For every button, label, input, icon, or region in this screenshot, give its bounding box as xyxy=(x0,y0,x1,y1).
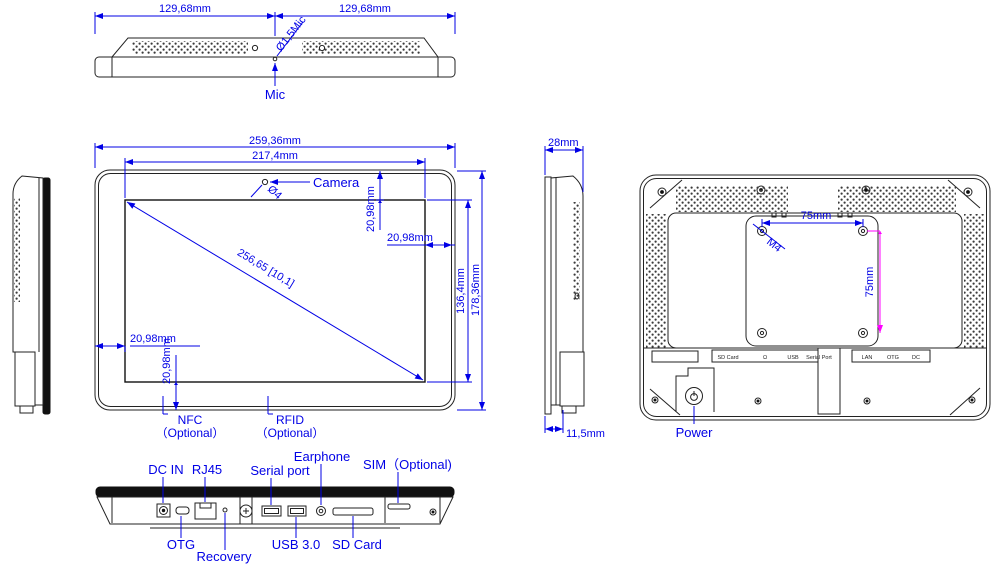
sim-label: SIM（Optional) xyxy=(363,457,452,472)
right-side-foot xyxy=(560,352,584,406)
sim-slot xyxy=(388,504,410,509)
left-side-view xyxy=(13,176,50,414)
back-vent-dots-top-right xyxy=(838,186,956,212)
left-side-vent-dots xyxy=(14,198,20,302)
sd-card-label: SD Card xyxy=(332,537,382,552)
rfid-label: RFID xyxy=(276,413,304,427)
vesa-plate xyxy=(746,216,878,346)
vesa-hole xyxy=(859,227,868,236)
drawing-svg: 129,68mm 129,68mm Ø1,5Mic Mic 259,36mm 2… xyxy=(0,0,1000,569)
dim-vesa-width: 75mm xyxy=(801,210,832,222)
dim-top-right: 129,68mm xyxy=(339,3,391,15)
top-screw-icon xyxy=(319,45,324,50)
rfid-optional-label: （Optional） xyxy=(256,426,325,440)
right-side-view: 28mm 11,5mm xyxy=(545,137,605,440)
usb3-label: USB 3.0 xyxy=(272,537,320,552)
drawing-canvas: 129,68mm 129,68mm Ø1,5Mic Mic 259,36mm 2… xyxy=(0,0,1000,569)
left-side-screen-edge xyxy=(43,178,50,414)
dim-offset-right: 20,98mm xyxy=(387,232,433,244)
right-side-foot-tab xyxy=(562,406,576,413)
dim-screen-height: 136,4mm xyxy=(455,268,467,314)
left-side-foot xyxy=(15,352,35,406)
back-vent-dots-right xyxy=(964,214,984,348)
bottom-screen-edge xyxy=(96,487,454,497)
strip-serial-label: Serial Port xyxy=(806,355,832,361)
dim-offset-top: 20,98mm xyxy=(365,186,377,232)
power-label: Power xyxy=(676,425,714,440)
right-side-screen-edge xyxy=(545,177,551,414)
sd-card-slot xyxy=(333,508,373,515)
dim-thickness: 28mm xyxy=(548,137,579,149)
dim-vesa-height: 75mm xyxy=(864,267,876,298)
back-vent-dots-left xyxy=(646,214,666,348)
dc-in-label: DC IN xyxy=(148,462,183,477)
back-view: SD Card Ω USB Serial Port LAN OTG DC 75m… xyxy=(640,175,990,440)
camera-label: Camera xyxy=(313,175,360,190)
front-view-body xyxy=(95,170,455,410)
right-side-body-group xyxy=(545,176,584,414)
bottom-view-body xyxy=(96,487,454,528)
dim-total-height: 178,36mm xyxy=(470,264,482,316)
right-side-vent-dots xyxy=(573,202,580,300)
dim-foot-depth: 11,5mm xyxy=(566,428,605,440)
strip-otg-label: OTG xyxy=(887,355,899,361)
serial-port-label: Serial port xyxy=(250,463,310,478)
strip-sd-label: SD Card xyxy=(717,355,738,361)
otg-port xyxy=(176,507,189,514)
dim-screen-width: 217,4mm xyxy=(252,150,298,162)
dim-total-width: 259,36mm xyxy=(249,135,301,147)
otg-label: OTG xyxy=(167,537,195,552)
rj45-port xyxy=(195,503,216,519)
vesa-hole xyxy=(859,329,868,338)
strip-dc-label: DC xyxy=(912,355,920,361)
bottom-view: DC IN RJ45 Serial port Earphone SIM（Opti… xyxy=(96,449,454,564)
vesa-hole xyxy=(758,329,767,338)
mic-label: Mic xyxy=(265,87,286,102)
top-view: 129,68mm 129,68mm Ø1,5Mic Mic xyxy=(95,3,455,102)
top-grille-dots-left xyxy=(132,41,248,54)
rj45-label: RJ45 xyxy=(192,462,222,477)
left-side-foot-tab xyxy=(20,406,33,413)
earphone-label: Earphone xyxy=(294,449,350,464)
earphone-jack xyxy=(317,507,326,516)
dim-top-left: 129,68mm xyxy=(159,3,211,15)
nfc-optional-label: （Optional） xyxy=(156,426,225,440)
nfc-label: NFC xyxy=(178,413,203,427)
strip-lan-label: LAN xyxy=(862,355,873,361)
back-label-blank xyxy=(652,351,698,362)
strip-earphone-label: Ω xyxy=(763,355,767,361)
recovery-label: Recovery xyxy=(197,549,252,564)
top-screw-icon xyxy=(252,45,257,50)
back-vent-dots-top-left xyxy=(676,186,788,212)
front-view: 259,36mm 217,4mm Camera Ø4 20,98mm 20,98… xyxy=(95,135,486,440)
strip-usb-label: USB xyxy=(787,355,799,361)
dim-offset-bottom: 20,98mm xyxy=(161,338,173,384)
